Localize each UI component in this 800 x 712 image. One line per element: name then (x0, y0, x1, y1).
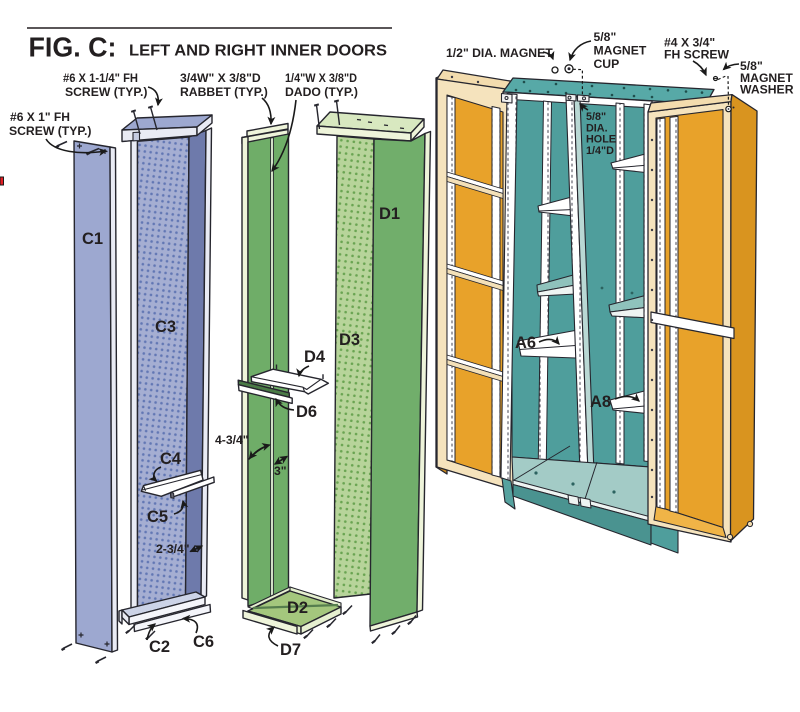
svg-text:LEFT AND RIGHT INNER DOORS: LEFT AND RIGHT INNER DOORS (129, 43, 387, 60)
svg-text:DIA.: DIA. (586, 122, 608, 134)
svg-text:FIG. C:: FIG. C: (29, 32, 117, 63)
svg-text:5/8": 5/8" (594, 30, 617, 44)
svg-text:RABBET (TYP.): RABBET (TYP.) (180, 85, 268, 99)
svg-text:C3: C3 (155, 318, 176, 336)
svg-text:3": 3" (274, 464, 287, 478)
svg-text:C2: C2 (149, 638, 170, 656)
svg-text:CUP: CUP (594, 57, 620, 71)
svg-text:SCREW (TYP.): SCREW (TYP.) (9, 124, 91, 138)
svg-text:D4: D4 (304, 348, 326, 366)
svg-text:1/4"W X 3/8"D: 1/4"W X 3/8"D (285, 71, 357, 85)
svg-text:D7: D7 (280, 641, 301, 659)
svg-text:D6: D6 (296, 403, 317, 421)
svg-text:2-3/4": 2-3/4" (156, 542, 190, 556)
svg-text:SCREW (TYP.): SCREW (TYP.) (65, 85, 147, 99)
svg-text:A8: A8 (590, 393, 611, 411)
svg-text:A6: A6 (515, 334, 536, 352)
svg-text:DADO (TYP.): DADO (TYP.) (285, 85, 358, 99)
svg-text:MAGNET: MAGNET (594, 44, 647, 58)
svg-text:C6: C6 (193, 633, 214, 651)
svg-text:1/4"D: 1/4"D (586, 145, 614, 157)
svg-text:HOLE: HOLE (586, 134, 616, 146)
svg-text:D2: D2 (287, 599, 308, 617)
svg-text:WASHER: WASHER (740, 83, 794, 97)
svg-text:C4: C4 (160, 450, 182, 468)
svg-text:D1: D1 (379, 205, 400, 223)
svg-text:1/2" DIA. MAGNET: 1/2" DIA. MAGNET (446, 46, 553, 60)
svg-text:3/4W" X 3/8"D: 3/4W" X 3/8"D (180, 71, 261, 85)
svg-text:#6 X 1-1/4" FH: #6 X 1-1/4" FH (63, 71, 138, 85)
svg-text:5/8": 5/8" (586, 111, 606, 123)
svg-text:#6 X 1" FH: #6 X 1" FH (10, 110, 70, 124)
svg-text:4-3/4": 4-3/4" (215, 433, 249, 447)
svg-text:C1: C1 (82, 230, 103, 248)
svg-text:C5: C5 (147, 508, 168, 526)
svg-text:D3: D3 (339, 331, 360, 349)
svg-text:FH SCREW: FH SCREW (664, 48, 729, 62)
